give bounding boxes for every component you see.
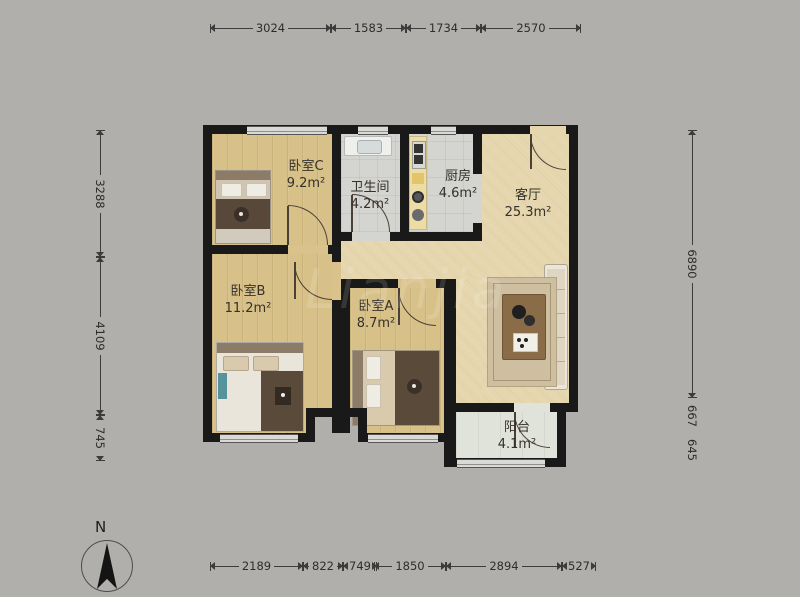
dimension-2894: 2894 [446, 558, 562, 574]
room-name: 卫生间 [322, 180, 418, 197]
door-opening [398, 279, 436, 288]
room-hallway [341, 241, 482, 279]
dimension-2189: 2189 [210, 558, 303, 574]
wall-segment [557, 403, 578, 412]
door-opening [288, 245, 328, 254]
room-label-bathroom: 卫生间4.2m² [322, 180, 418, 214]
room-area: 25.3m² [480, 205, 576, 222]
room-name: 厨房 [410, 169, 506, 186]
window [368, 434, 438, 443]
dimension-749: 749 [343, 558, 374, 574]
room-area: 4.1m² [469, 437, 565, 454]
bedroom-c-door-leaf [287, 206, 289, 245]
north-compass: N [81, 540, 131, 590]
window [220, 434, 298, 443]
room-name: 卧室C [258, 159, 354, 176]
window [358, 126, 388, 135]
dimension-3024: 3024 [210, 20, 331, 36]
bed-b [216, 342, 304, 432]
window [457, 459, 545, 468]
floorplan-canvas: Lianjia N 卧室C9.2m²卫生间4.2m²厨房4.6m²客厅25.3m… [0, 0, 800, 597]
door-opening [332, 262, 341, 300]
dimension-4109: 4109 [92, 257, 108, 415]
dimension-527: 527 [562, 558, 588, 574]
dimension-1734: 1734 [406, 20, 481, 36]
window [431, 126, 456, 135]
dimension-1850: 1850 [374, 558, 446, 574]
entrance-door-leaf [530, 134, 532, 169]
room-area: 8.7m² [328, 316, 424, 333]
dimension-745: 745 [92, 415, 108, 461]
dimension-667: 667 [684, 398, 700, 433]
door-opening [530, 126, 566, 134]
dimension-822: 822 [303, 558, 343, 574]
room-label-bedroom-b: 卧室B11.2m² [200, 284, 296, 318]
bathroom-vanity [344, 136, 392, 156]
north-label: N [95, 518, 106, 536]
dimension-6890: 6890 [684, 130, 700, 398]
room-name: 卧室B [200, 284, 296, 301]
room-area: 4.2m² [322, 197, 418, 214]
dimension-3288: 3288 [92, 130, 108, 257]
coffee-table [502, 294, 546, 360]
room-label-living-room: 客厅25.3m² [480, 188, 576, 222]
room-area: 11.2m² [200, 301, 296, 318]
window [247, 126, 327, 135]
dimension-645: 645 [684, 433, 700, 466]
room-name: 卧室A [328, 299, 424, 316]
room-name: 客厅 [480, 188, 576, 205]
room-name: 阳台 [469, 420, 565, 437]
room-label-bedroom-a: 卧室A8.7m² [328, 299, 424, 333]
dimension-2570: 2570 [481, 20, 581, 36]
wall-segment [473, 134, 482, 174]
room-label-balcony: 阳台4.1m² [469, 420, 565, 454]
wall-segment [306, 408, 315, 442]
door-opening [514, 403, 550, 412]
wall-segment [569, 125, 578, 412]
door-opening [352, 232, 390, 241]
room-hallway-ext [456, 279, 482, 403]
dimension-1583: 1583 [331, 20, 406, 36]
